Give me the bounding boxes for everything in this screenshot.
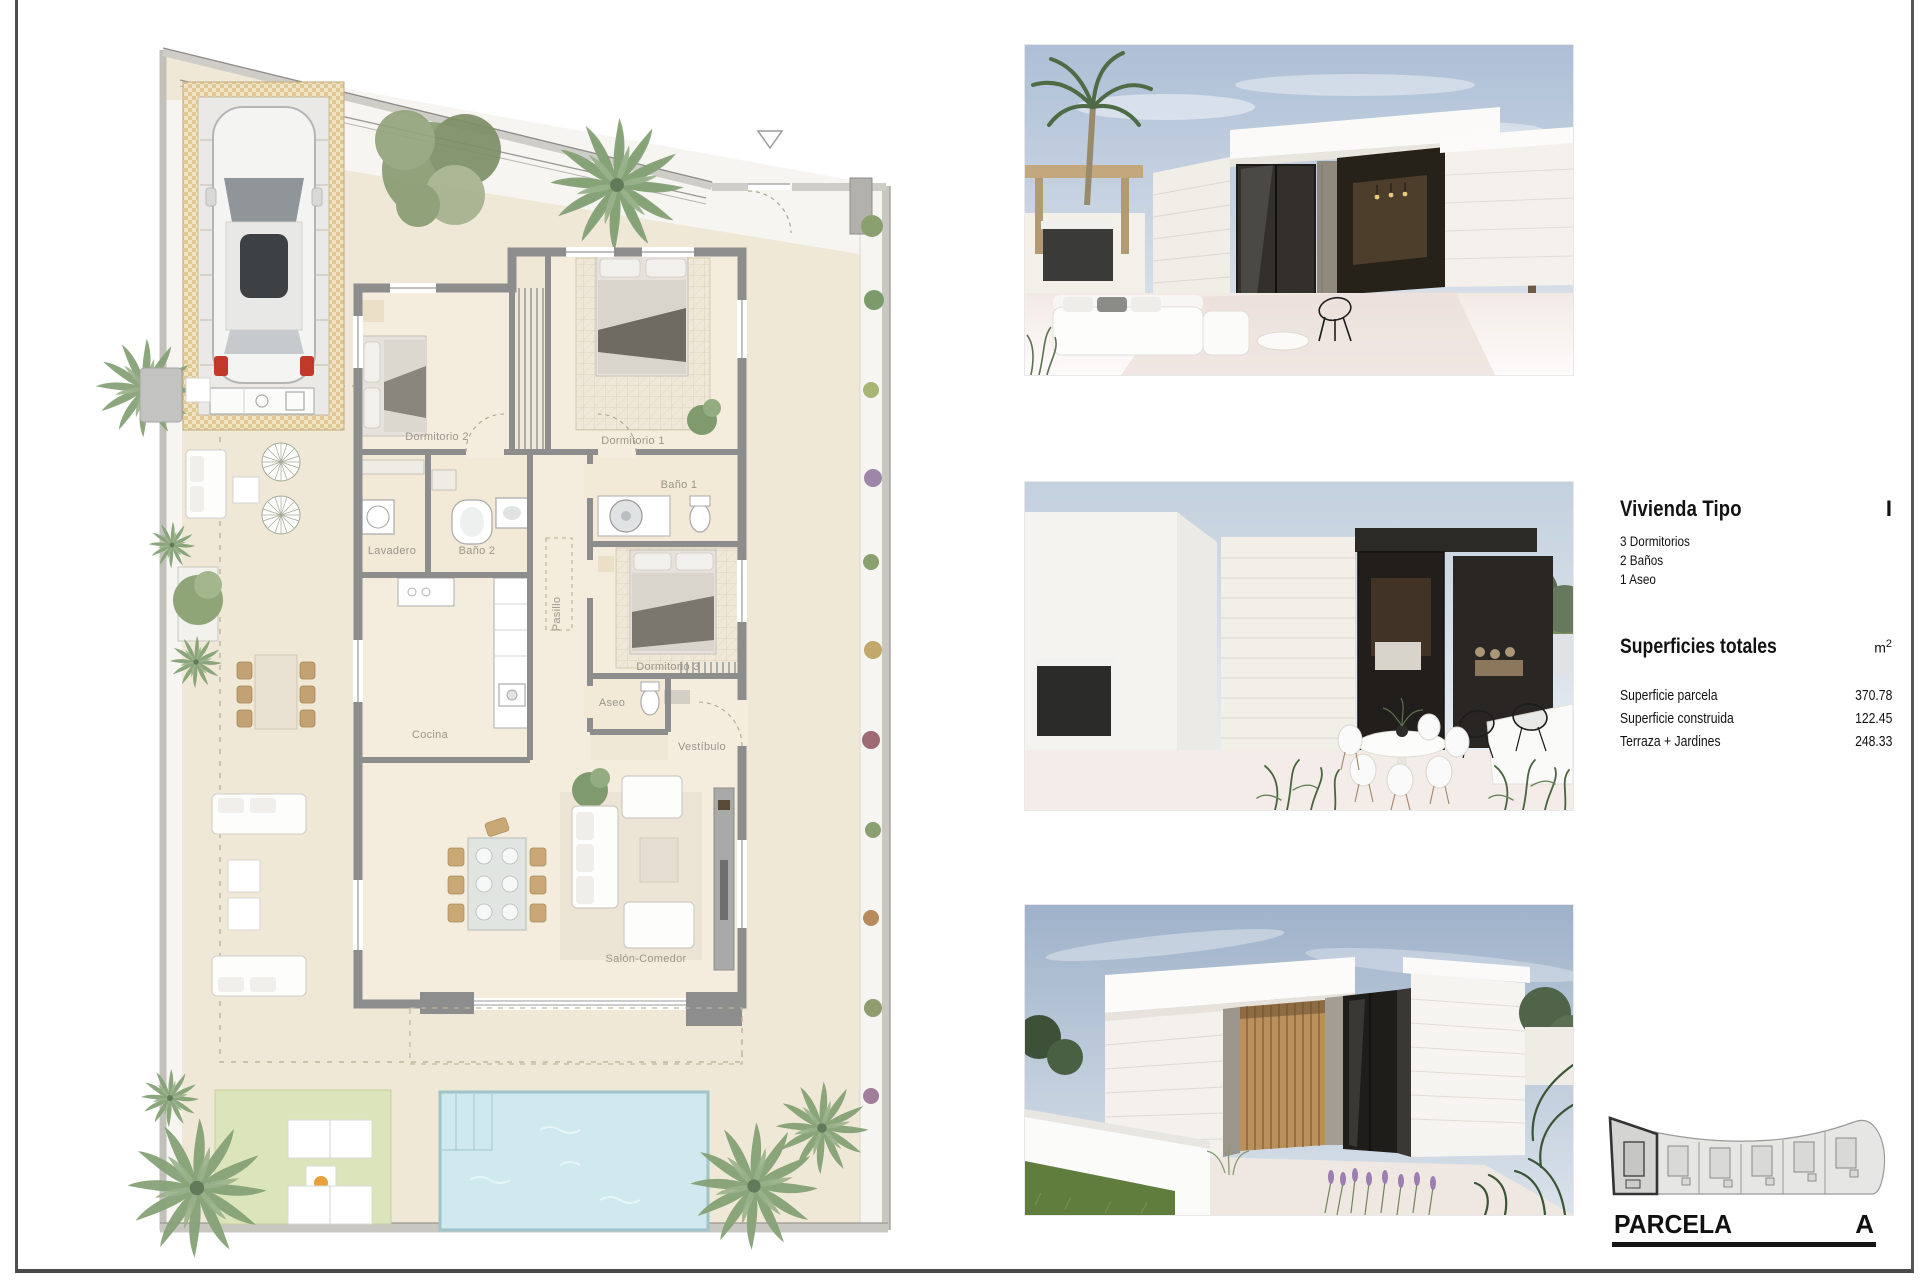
parcel-underline <box>1612 1242 1876 1247</box>
room-label: Aseo <box>599 697 625 709</box>
render-photo-terrace-dining <box>1025 482 1573 810</box>
surface-label: Superficie construida <box>1620 708 1734 731</box>
surface-row: Terraza + Jardines 248.33 <box>1620 731 1892 754</box>
plan-sheet-page: Dormitorio 2 Dormitorio 1 Baño 1 Lavader… <box>0 0 1920 1280</box>
feature-list: 3 Dormitorios 2 Baños 1 Aseo <box>1620 532 1892 589</box>
outdoor-kitchen-counter <box>210 388 314 414</box>
room-label: Dormitorio 2 <box>405 431 469 443</box>
info-panel: Vivienda Tipo I 3 Dormitorios 2 Baños 1 … <box>1620 496 1892 754</box>
room-label: Dormitorio 3 <box>636 661 700 673</box>
feature-bathrooms: 2 Baños <box>1620 551 1663 570</box>
render-photo-exterior-terrace <box>1025 45 1573 375</box>
room-label: Cocina <box>412 729 449 741</box>
floor-plan: Dormitorio 2 Dormitorio 1 Baño 1 Lavader… <box>0 0 960 1280</box>
feature-bedrooms: 3 Dormitorios <box>1620 532 1690 551</box>
surfaces-unit: m2 <box>1874 638 1892 656</box>
surface-row: Superficie parcela 370.78 <box>1620 685 1892 708</box>
gravel-strip-right <box>860 186 884 1230</box>
dwelling-type-letter: I <box>1886 496 1892 522</box>
surface-value: 122.45 <box>1855 708 1892 731</box>
dwelling-type-title: Vivienda Tipo <box>1620 496 1742 522</box>
surfaces-table: Superficie parcela 370.78 Superficie con… <box>1620 685 1892 754</box>
render-photo-corner-wood-slats <box>1025 905 1573 1215</box>
parasol-icon <box>262 496 300 534</box>
room-label: Dormitorio 1 <box>601 435 665 447</box>
parasol-icon <box>262 443 300 481</box>
parcel-label: PARCELA <box>1614 1209 1732 1239</box>
parcel-selected-letter: A <box>1855 1209 1874 1239</box>
site-plan-mini-map <box>1610 1118 1885 1194</box>
surface-value: 370.78 <box>1855 685 1892 708</box>
gravel-strip-left <box>166 100 182 1230</box>
surfaces-title: Superficies totales <box>1620 635 1777 659</box>
feature-toilet: 1 Aseo <box>1620 570 1656 589</box>
room-label: Pasillo <box>551 597 563 632</box>
dormitorio3-furniture <box>598 548 740 674</box>
surface-label: Terraza + Jardines <box>1620 731 1721 754</box>
parcel-legend: PARCELA A <box>1602 1092 1898 1257</box>
room-label: Lavadero <box>368 545 416 557</box>
room-label: Baño 1 <box>661 479 698 491</box>
outdoor-dining-set <box>237 655 315 729</box>
pool <box>440 1092 708 1230</box>
room-label: Vestíbulo <box>678 741 726 753</box>
dormitorio1-furniture <box>576 256 721 435</box>
car-icon <box>206 107 322 383</box>
surface-row: Superficie construida 122.45 <box>1620 708 1892 731</box>
lawn <box>215 1090 391 1224</box>
room-label: Baño 2 <box>459 545 496 557</box>
room-label: Salón-Comedor <box>606 953 687 965</box>
entrance-marker-icon <box>758 131 782 148</box>
surface-label: Superficie parcela <box>1620 685 1718 708</box>
surface-value: 248.33 <box>1855 731 1892 754</box>
